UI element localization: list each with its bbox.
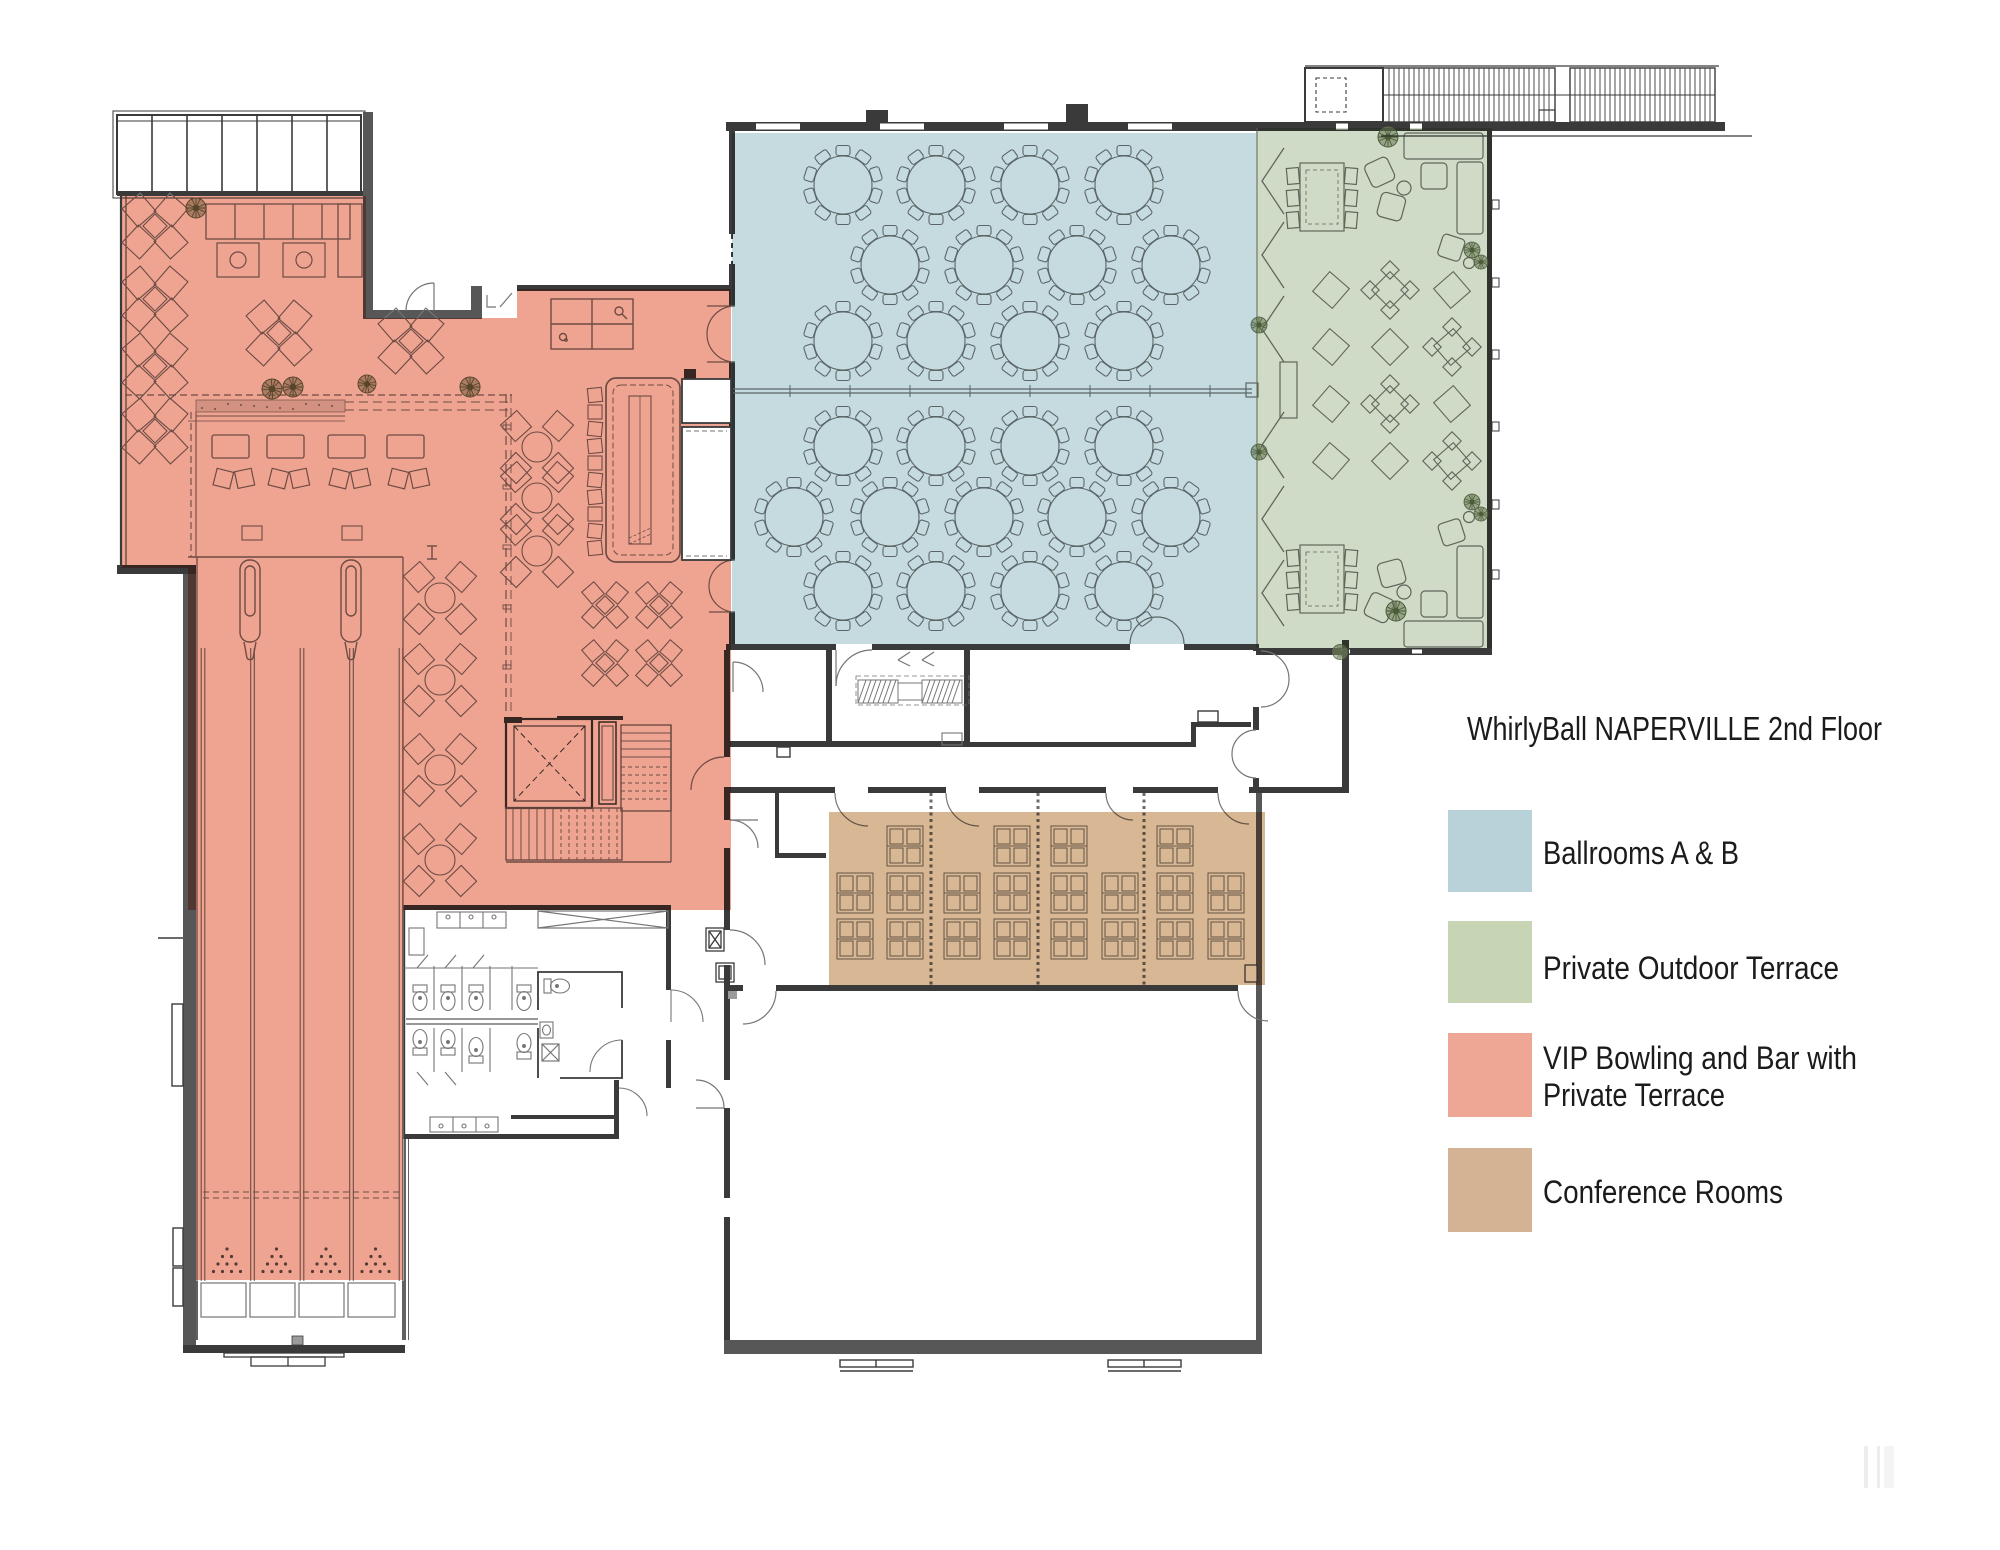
svg-text:Conference Rooms: Conference Rooms (1543, 1174, 1783, 1210)
svg-text:VIP Bowling and Bar with: VIP Bowling and Bar with (1543, 1040, 1857, 1076)
svg-text:WhirlyBall NAPERVILLE 2nd Floo: WhirlyBall NAPERVILLE 2nd Floor (1467, 710, 1882, 747)
svg-text:Ballrooms A & B: Ballrooms A & B (1543, 835, 1739, 871)
svg-text:Private Terrace: Private Terrace (1543, 1077, 1725, 1113)
svg-text:Private Outdoor Terrace: Private Outdoor Terrace (1543, 950, 1839, 986)
